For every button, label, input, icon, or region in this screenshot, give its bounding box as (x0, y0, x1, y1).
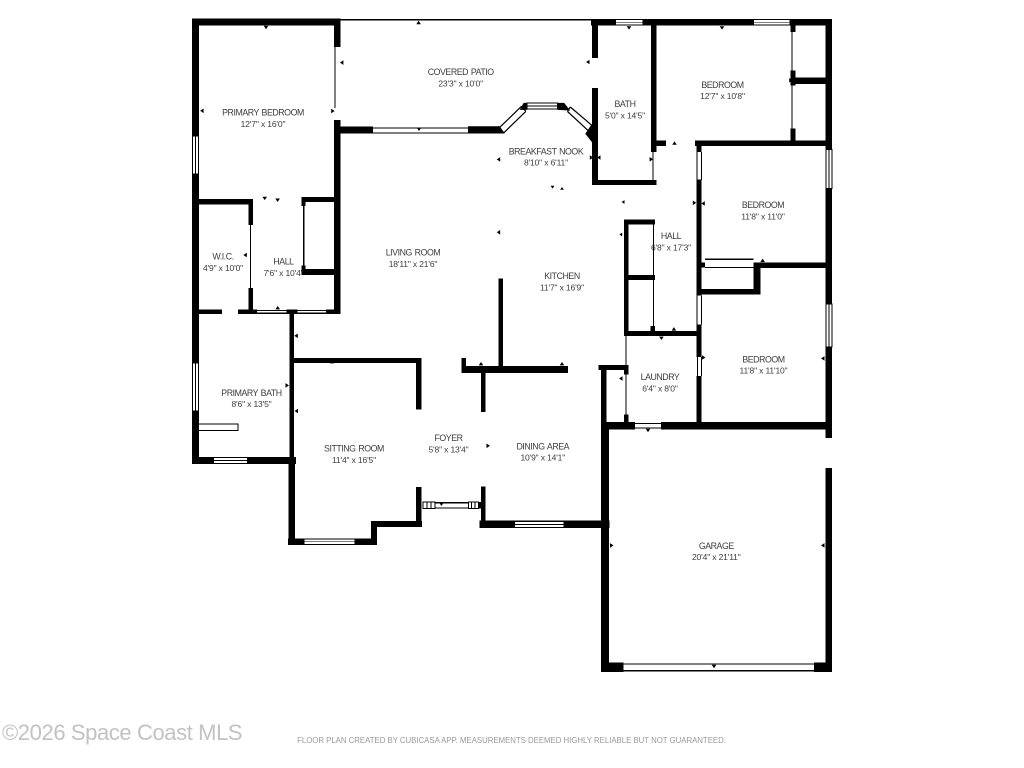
svg-text:GARAGE: GARAGE (699, 541, 735, 551)
svg-text:PRIMARY BATH: PRIMARY BATH (221, 388, 282, 398)
svg-text:5'0" x 14'5": 5'0" x 14'5" (605, 110, 645, 120)
svg-text:COVERED PATIO: COVERED PATIO (428, 67, 495, 77)
svg-text:23'3" x 10'0": 23'3" x 10'0" (438, 78, 483, 88)
svg-text:11'8" x 11'0": 11'8" x 11'0" (741, 211, 785, 221)
svg-text:11'4" x 16'5": 11'4" x 16'5" (332, 455, 376, 465)
svg-text:20'4" x 21'11": 20'4" x 21'11" (692, 552, 741, 562)
svg-text:12'7" x 10'8": 12'7" x 10'8" (700, 91, 745, 101)
svg-text:BREAKFAST NOOK: BREAKFAST NOOK (509, 146, 584, 156)
svg-text:4'9" x 10'0": 4'9" x 10'0" (203, 263, 243, 273)
svg-text:8'10" x 6'11": 8'10" x 6'11" (524, 158, 568, 168)
svg-text:HALL: HALL (661, 231, 682, 241)
svg-text:18'11" x 21'6": 18'11" x 21'6" (389, 259, 438, 269)
svg-text:W.I.C.: W.I.C. (212, 252, 233, 262)
svg-text:PRIMARY BEDROOM: PRIMARY BEDROOM (222, 108, 304, 118)
svg-text:11'8" x 11'10": 11'8" x 11'10" (740, 366, 788, 376)
svg-text:FLOOR PLAN CREATED BY CUBICASA: FLOOR PLAN CREATED BY CUBICASA APP. MEAS… (297, 736, 726, 745)
svg-text:7'6" x 10'4": 7'6" x 10'4" (263, 268, 303, 278)
svg-text:BEDROOM: BEDROOM (701, 80, 743, 90)
svg-text:6'4" x 8'0": 6'4" x 8'0" (642, 383, 678, 393)
svg-text:6'8" x 17'3": 6'8" x 17'3" (651, 243, 691, 253)
svg-text:BEDROOM: BEDROOM (742, 354, 784, 364)
svg-text:12'7" x 16'0": 12'7" x 16'0" (241, 119, 286, 129)
svg-text:LIVING ROOM: LIVING ROOM (386, 248, 441, 258)
svg-text:10'9" x 14'1": 10'9" x 14'1" (520, 453, 565, 463)
svg-text:BEDROOM: BEDROOM (742, 200, 784, 210)
svg-text:FOYER: FOYER (434, 433, 462, 443)
svg-text:KITCHEN: KITCHEN (544, 271, 580, 281)
svg-text:11'7" x 16'9": 11'7" x 16'9" (540, 282, 584, 292)
svg-text:BATH: BATH (614, 99, 635, 109)
svg-text:©2026 Space Coast MLS: ©2026 Space Coast MLS (2, 720, 242, 745)
svg-text:DINING AREA: DINING AREA (517, 441, 570, 451)
svg-text:5'8" x 13'4": 5'8" x 13'4" (428, 444, 468, 454)
svg-text:HALL: HALL (273, 257, 294, 267)
svg-text:LAUNDRY: LAUNDRY (641, 372, 680, 382)
svg-text:8'6" x 13'5": 8'6" x 13'5" (231, 399, 271, 409)
svg-text:SITTING ROOM: SITTING ROOM (324, 444, 384, 454)
